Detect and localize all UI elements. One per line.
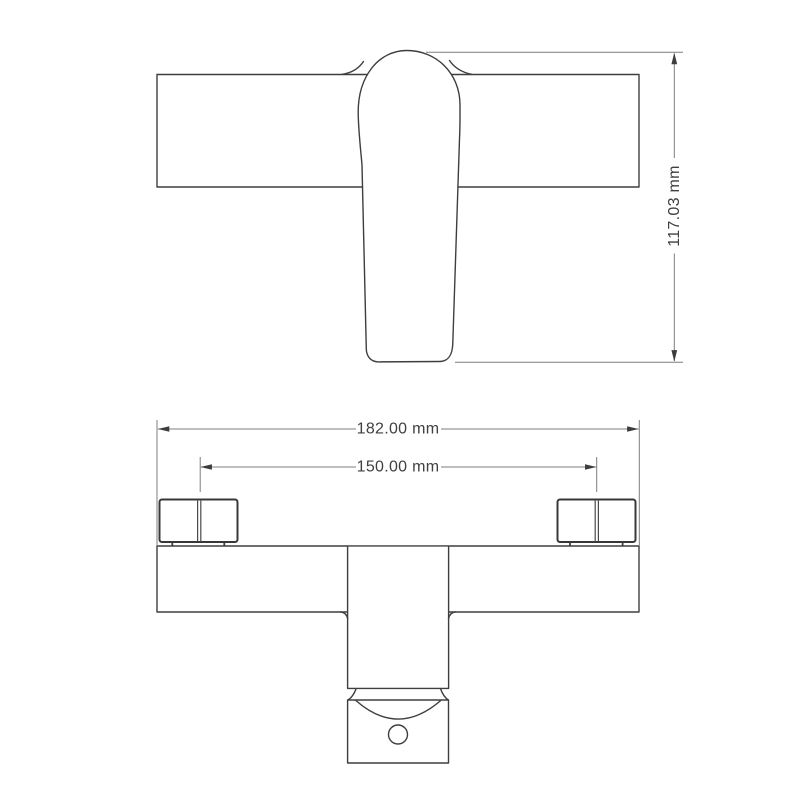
elevation-view	[157, 51, 639, 362]
left-connector-body	[160, 500, 238, 543]
arrow-right-icon	[585, 464, 597, 470]
overall-width-label: 182.00 mm	[357, 421, 440, 438]
column-right-fillet	[449, 612, 456, 619]
technical-drawing-page: 117.03 mm	[0, 0, 800, 800]
lever-handle-outline	[358, 51, 460, 362]
handle-right-fillet	[450, 61, 473, 75]
plan-view	[157, 500, 639, 764]
handle-left-fillet	[342, 62, 364, 75]
left-inlet-connector	[160, 500, 238, 547]
column-left-fillet	[341, 612, 348, 619]
spout-column-outline	[348, 547, 449, 689]
outlet-left-neck	[348, 689, 356, 700]
mixer-tap-dimension-drawing: 117.03 mm	[0, 0, 800, 800]
arrow-right-icon	[627, 426, 639, 432]
outlet-hole	[389, 725, 408, 744]
outlet-box-outline	[348, 700, 449, 763]
inlet-centers-label: 150.00 mm	[357, 459, 440, 476]
height-dimension: 117.03 mm	[426, 52, 683, 362]
arrow-left-icon	[158, 426, 170, 432]
inlet-centers-dimension: 150.00 mm	[200, 457, 597, 492]
outlet-curved-face	[356, 701, 441, 719]
right-inlet-connector	[558, 500, 636, 547]
right-connector-body	[558, 500, 636, 543]
height-dimension-label: 117.03 mm	[666, 165, 683, 247]
spout-outlet-housing	[348, 689, 449, 763]
outlet-right-neck	[441, 689, 449, 700]
arrow-up-icon	[671, 53, 677, 65]
arrow-left-icon	[200, 464, 212, 470]
arrow-down-icon	[671, 350, 677, 362]
